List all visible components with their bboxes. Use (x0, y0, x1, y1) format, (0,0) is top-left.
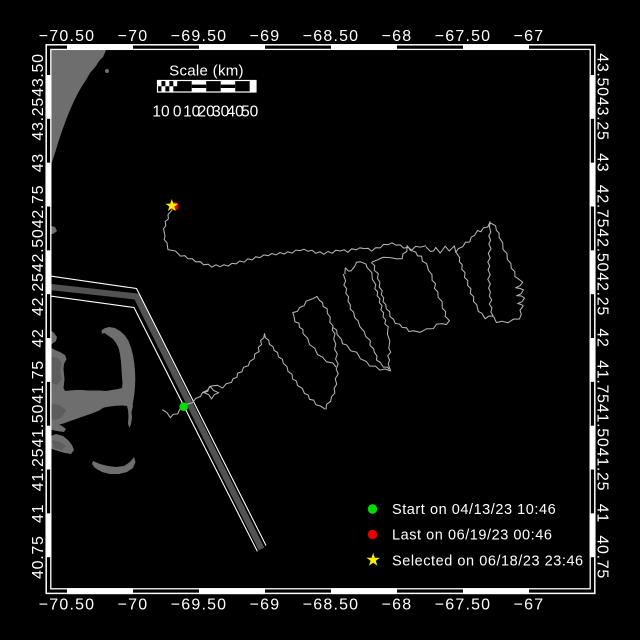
svg-text:−70: −70 (118, 28, 149, 45)
svg-text:41.25: 41.25 (594, 448, 611, 492)
svg-text:41.50: 41.50 (30, 404, 47, 448)
svg-text:41.25: 41.25 (30, 448, 47, 492)
svg-text:40.75: 40.75 (30, 535, 47, 579)
svg-text:−69: −69 (250, 28, 281, 45)
svg-text:42.25: 42.25 (30, 272, 47, 316)
svg-text:43.50: 43.50 (594, 53, 611, 97)
svg-text:41: 41 (30, 504, 47, 523)
svg-text:42.75: 42.75 (594, 185, 611, 229)
svg-text:0: 0 (173, 104, 182, 121)
svg-text:42.75: 42.75 (30, 185, 47, 229)
svg-text:43.25: 43.25 (30, 97, 47, 141)
svg-text:43: 43 (594, 153, 611, 172)
svg-text:41.50: 41.50 (594, 404, 611, 448)
svg-text:−67: −67 (514, 597, 545, 614)
svg-text:−69.50: −69.50 (171, 28, 228, 45)
svg-text:−69.50: −69.50 (171, 597, 228, 614)
svg-text:−68: −68 (382, 28, 413, 45)
svg-text:43.50: 43.50 (30, 53, 47, 97)
svg-text:−70: −70 (118, 597, 149, 614)
svg-text:−68.50: −68.50 (303, 597, 360, 614)
svg-text:−70.50: −70.50 (39, 28, 96, 45)
svg-text:41.75: 41.75 (30, 360, 47, 404)
svg-text:Start on 04/13/23 10:46: Start on 04/13/23 10:46 (392, 502, 556, 518)
svg-text:Scale (km): Scale (km) (169, 63, 244, 80)
svg-text:−67.50: −67.50 (435, 28, 492, 45)
svg-text:−68: −68 (382, 597, 413, 614)
svg-text:10: 10 (152, 104, 170, 121)
svg-text:50: 50 (241, 104, 259, 121)
svg-text:Last on 06/19/23 00:46: Last on 06/19/23 00:46 (392, 528, 552, 544)
svg-text:−69: −69 (250, 597, 281, 614)
svg-text:43.25: 43.25 (594, 97, 611, 141)
svg-text:43: 43 (30, 153, 47, 172)
svg-text:−70.50: −70.50 (39, 597, 96, 614)
svg-text:40.75: 40.75 (594, 535, 611, 579)
svg-text:41.75: 41.75 (594, 360, 611, 404)
svg-text:42.50: 42.50 (594, 229, 611, 273)
svg-text:42.50: 42.50 (30, 229, 47, 273)
svg-text:42: 42 (594, 328, 611, 347)
svg-text:−68.50: −68.50 (303, 28, 360, 45)
svg-text:42: 42 (30, 328, 47, 347)
svg-text:−67.50: −67.50 (435, 597, 492, 614)
svg-text:−67: −67 (514, 28, 545, 45)
svg-text:Selected on 06/18/23 23:46: Selected on 06/18/23 23:46 (392, 554, 584, 570)
svg-text:42.25: 42.25 (594, 272, 611, 316)
svg-text:41: 41 (594, 504, 611, 523)
